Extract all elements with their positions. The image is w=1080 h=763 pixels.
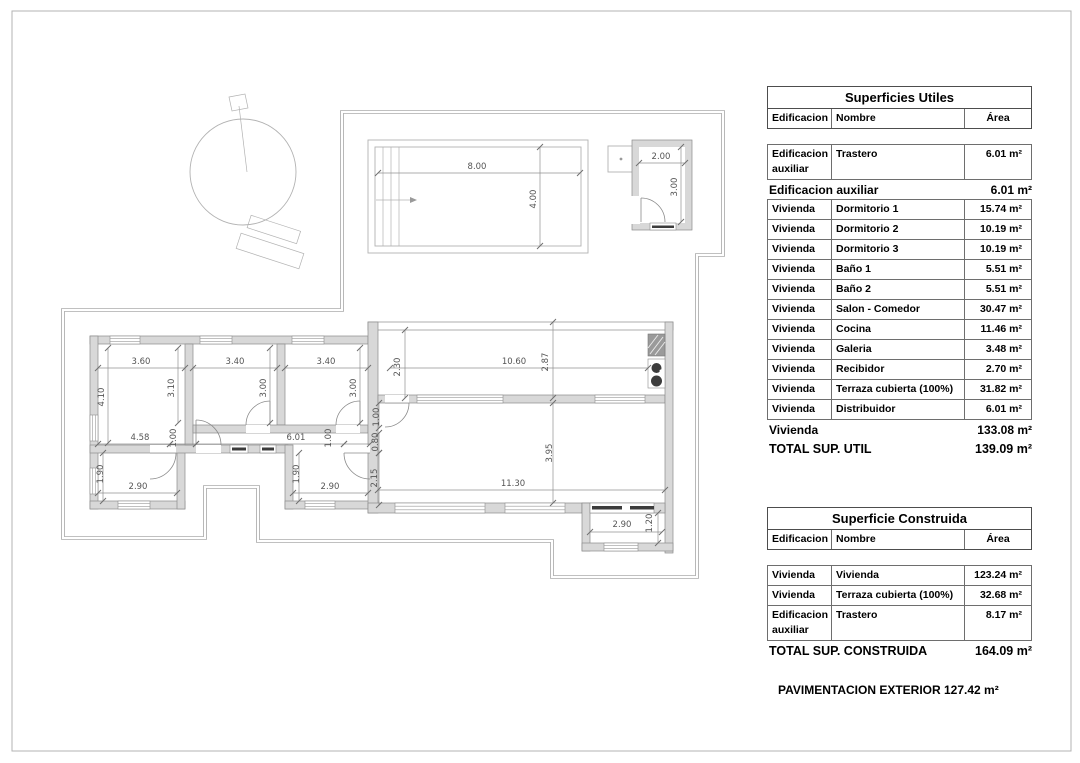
cell-edificacion: Vivienda (768, 260, 832, 279)
dimension-label: 2.30 (393, 358, 403, 377)
table-row: Vivienda Terraza cubierta (100%) 32.68 m… (768, 586, 1031, 606)
cell-edificacion: Vivienda (768, 360, 832, 379)
cell-nombre: Distribuidor (832, 400, 965, 419)
cell-area: 31.82 m² (965, 380, 1031, 399)
planter (236, 233, 304, 269)
total-label: TOTAL SUP. CONSTRUIDA (769, 644, 927, 658)
cell-area: 6.01 m² (965, 400, 1031, 419)
planter (247, 215, 300, 243)
dimension-label: 3.00 (670, 178, 680, 197)
dimension-label: 3.40 (317, 357, 336, 367)
cell-area: 8.17 m² (965, 606, 1031, 640)
cell-nombre: Recibidor (832, 360, 965, 379)
subtotal-value: 6.01 m² (991, 183, 1032, 197)
table-row: Vivienda Dormitorio 1 15.74 m² (768, 200, 1031, 220)
dimension-label: 4.00 (529, 190, 539, 209)
table-title: Superficies Utiles (767, 86, 1032, 109)
dimension-label: 1.00 (169, 429, 179, 448)
cell-edificacion: Edificacion auxiliar (768, 606, 832, 640)
dimension-label: 2.90 (321, 482, 340, 492)
dimension-label: 8.00 (468, 162, 487, 172)
cell-nombre: Dormitorio 3 (832, 240, 965, 259)
cell-edificacion: Vivienda (768, 380, 832, 399)
total-row: TOTAL SUP. CONSTRUIDA 164.09 m² (767, 641, 1032, 660)
cell-nombre: Galeria (832, 340, 965, 359)
cell-edificacion: Vivienda (768, 586, 832, 605)
cell-nombre: Trastero (832, 606, 965, 640)
cell-nombre: Dormitorio 1 (832, 200, 965, 219)
table-row: Vivienda Baño 2 5.51 m² (768, 280, 1031, 300)
dimension-label: 2.00 (652, 152, 671, 162)
dimension-label: 3.60 (132, 357, 151, 367)
cell-nombre: Trastero (832, 145, 965, 179)
cell-nombre: Baño 2 (832, 280, 965, 299)
cell-edificacion: Vivienda (768, 280, 832, 299)
subtotal-row: Edificacion auxiliar 6.01 m² (767, 180, 1032, 199)
total-value: 139.09 m² (975, 442, 1032, 456)
subtotal-label: Edificacion auxiliar (769, 183, 878, 197)
column-header-area: Área (965, 109, 1031, 128)
total-row: TOTAL SUP. UTIL 139.09 m² (767, 439, 1032, 458)
table-body: Vivienda Vivienda 123.24 m² Vivienda Ter… (767, 565, 1032, 641)
dimension-label: 3.10 (167, 379, 177, 398)
cell-edificacion: Vivienda (768, 566, 832, 585)
cell-edificacion: Vivienda (768, 340, 832, 359)
dimension-label: 1.00 (324, 429, 334, 448)
table-row: Vivienda Cocina 11.46 m² (768, 320, 1031, 340)
dimension-label: 10.60 (502, 357, 526, 367)
cell-area: 123.24 m² (965, 566, 1031, 585)
table-row: Vivienda Salon - Comedor 30.47 m² (768, 300, 1031, 320)
dimension-label: 1.00 (372, 408, 382, 427)
table-row: Vivienda Recibidor 2.70 m² (768, 360, 1031, 380)
cell-nombre: Cocina (832, 320, 965, 339)
tree (190, 94, 304, 269)
subtotal-label: Vivienda (769, 423, 818, 437)
total-label: TOTAL SUP. UTIL (769, 442, 872, 456)
dimension-label: 2.90 (613, 520, 632, 530)
cell-edificacion: Vivienda (768, 220, 832, 239)
table-body: Edificacion auxiliar Trastero 6.01 m² (767, 144, 1032, 180)
table-header: Edificacion Nombre Área (767, 108, 1032, 129)
dimension-label: 3.95 (545, 444, 555, 463)
dimension-label: 4.58 (131, 433, 150, 443)
dimension-label: 1.20 (645, 514, 655, 533)
table-title: Superficie Construida (767, 507, 1032, 530)
table-header: Edificacion Nombre Área (767, 529, 1032, 550)
cell-area: 32.68 m² (965, 586, 1031, 605)
cell-area: 6.01 m² (965, 145, 1031, 179)
column-header-edificacion: Edificacion (768, 530, 832, 549)
cell-area: 10.19 m² (965, 220, 1031, 239)
cell-nombre: Vivienda (832, 566, 965, 585)
total-value: 164.09 m² (975, 644, 1032, 658)
cell-edificacion: Vivienda (768, 320, 832, 339)
table-row: Vivienda Dormitorio 3 10.19 m² (768, 240, 1031, 260)
table-row: Vivienda Distribuidor 6.01 m² (768, 400, 1031, 419)
column-header-nombre: Nombre (832, 109, 965, 128)
column-header-nombre: Nombre (832, 530, 965, 549)
kitchen-counter (648, 334, 665, 388)
dimension-label: 1.90 (96, 465, 106, 484)
table-row: Vivienda Terraza cubierta (100%) 31.82 m… (768, 380, 1031, 400)
dimension-label: 3.00 (259, 379, 269, 398)
table-row: Vivienda Galeria 3.48 m² (768, 340, 1031, 360)
table-superficie-construida: Superficie Construida Edificacion Nombre… (767, 507, 1032, 660)
dimension-label: 2.87 (541, 353, 551, 372)
cell-nombre: Dormitorio 2 (832, 220, 965, 239)
window (652, 226, 674, 229)
cell-edificacion: Vivienda (768, 300, 832, 319)
cell-area: 2.70 m² (965, 360, 1031, 379)
cell-edificacion: Edificacion auxiliar (768, 145, 832, 179)
cell-nombre: Terraza cubierta (100%) (832, 586, 965, 605)
table-row: Vivienda Dormitorio 2 10.19 m² (768, 220, 1031, 240)
cell-nombre: Salon - Comedor (832, 300, 965, 319)
exterior-paving-note: PAVIMENTACION EXTERIOR 127.42 m² (778, 683, 999, 697)
dimension-label: 3.00 (349, 379, 359, 398)
cell-area: 3.48 m² (965, 340, 1031, 359)
table-body: Vivienda Dormitorio 1 15.74 m² Vivienda … (767, 199, 1032, 420)
table-row: Vivienda Baño 1 5.51 m² (768, 260, 1031, 280)
cell-area: 5.51 m² (965, 280, 1031, 299)
cell-edificacion: Vivienda (768, 200, 832, 219)
cell-area: 11.46 m² (965, 320, 1031, 339)
table-row: Vivienda Vivienda 123.24 m² (768, 566, 1031, 586)
cell-nombre: Baño 1 (832, 260, 965, 279)
cell-edificacion: Vivienda (768, 240, 832, 259)
table-row: Edificacion auxiliar Trastero 6.01 m² (768, 145, 1031, 179)
column-header-area: Área (965, 530, 1031, 549)
dimension-label: 6.01 (287, 433, 306, 443)
subtotal-row: Vivienda 133.08 m² (767, 420, 1032, 439)
cell-area: 5.51 m² (965, 260, 1031, 279)
table-row: Edificacion auxiliar Trastero 8.17 m² (768, 606, 1031, 640)
dimension-label: 11.30 (501, 479, 525, 489)
cell-area: 15.74 m² (965, 200, 1031, 219)
subtotal-value: 133.08 m² (977, 423, 1032, 437)
pool (368, 140, 588, 253)
table-superficies-utiles: Superficies Utiles Edificacion Nombre Ár… (767, 86, 1032, 458)
cell-area: 30.47 m² (965, 300, 1031, 319)
dimension-label: 4.10 (97, 388, 107, 407)
drawing-sheet: { "utiles": { "title": "Superficies Util… (0, 0, 1080, 763)
dimension-label: 2.90 (129, 482, 148, 492)
cell-nombre: Terraza cubierta (100%) (832, 380, 965, 399)
dimension-label: 1.90 (292, 465, 302, 484)
dimension-label: 2.15 (370, 469, 380, 488)
cell-edificacion: Vivienda (768, 400, 832, 419)
cell-area: 10.19 m² (965, 240, 1031, 259)
column-header-edificacion: Edificacion (768, 109, 832, 128)
dimension-label: 3.40 (226, 357, 245, 367)
